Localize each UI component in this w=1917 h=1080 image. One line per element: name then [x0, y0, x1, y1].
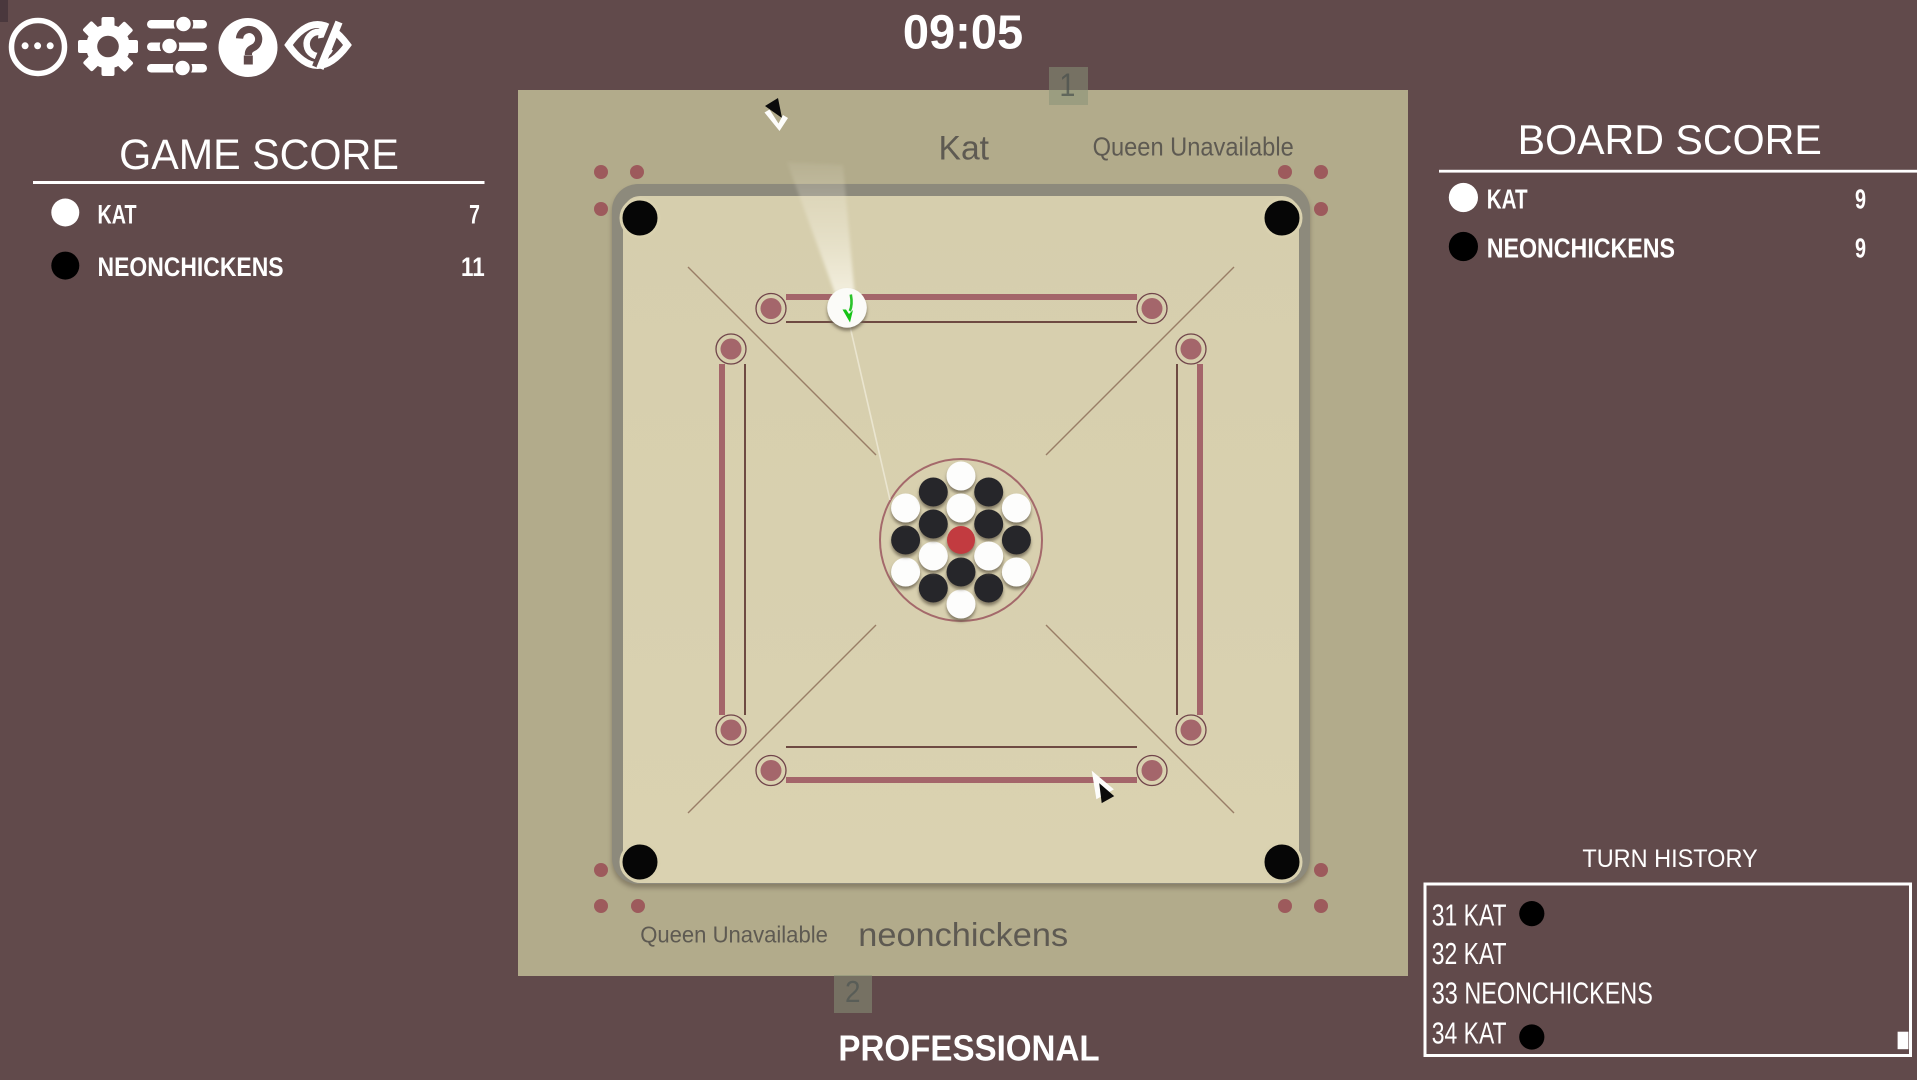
svg-text:1: 1	[1059, 68, 1075, 104]
svg-text:Queen Unavailable: Queen Unavailable	[640, 922, 828, 948]
svg-text:NEONCHICKENS: NEONCHICKENS	[1487, 234, 1675, 264]
svg-text:NEONCHICKENS: NEONCHICKENS	[98, 252, 284, 282]
svg-text:9: 9	[1855, 233, 1866, 264]
svg-text:Kat: Kat	[939, 129, 990, 167]
svg-text:9: 9	[1855, 184, 1866, 215]
svg-text:32 KAT: 32 KAT	[1432, 935, 1507, 970]
svg-text:BOARD SCORE: BOARD SCORE	[1518, 116, 1822, 163]
svg-text:Queen Unavailable: Queen Unavailable	[1093, 134, 1294, 162]
svg-text:33 NEONCHICKENS: 33 NEONCHICKENS	[1432, 975, 1653, 1010]
svg-text:neonchickens: neonchickens	[858, 918, 1068, 954]
svg-text:7: 7	[469, 199, 480, 229]
svg-text:PROFESSIONAL: PROFESSIONAL	[838, 1029, 1099, 1069]
svg-text:34 KAT: 34 KAT	[1432, 1015, 1507, 1050]
svg-text:2: 2	[845, 975, 861, 1010]
svg-text:31 KAT: 31 KAT	[1432, 897, 1507, 932]
svg-text:11: 11	[461, 253, 485, 282]
svg-text:TURN HISTORY: TURN HISTORY	[1582, 845, 1757, 873]
svg-text:09:05: 09:05	[903, 6, 1023, 60]
svg-text:KAT: KAT	[1487, 185, 1528, 216]
svg-text:GAME SCORE: GAME SCORE	[119, 130, 399, 178]
svg-text:KAT: KAT	[98, 201, 137, 231]
